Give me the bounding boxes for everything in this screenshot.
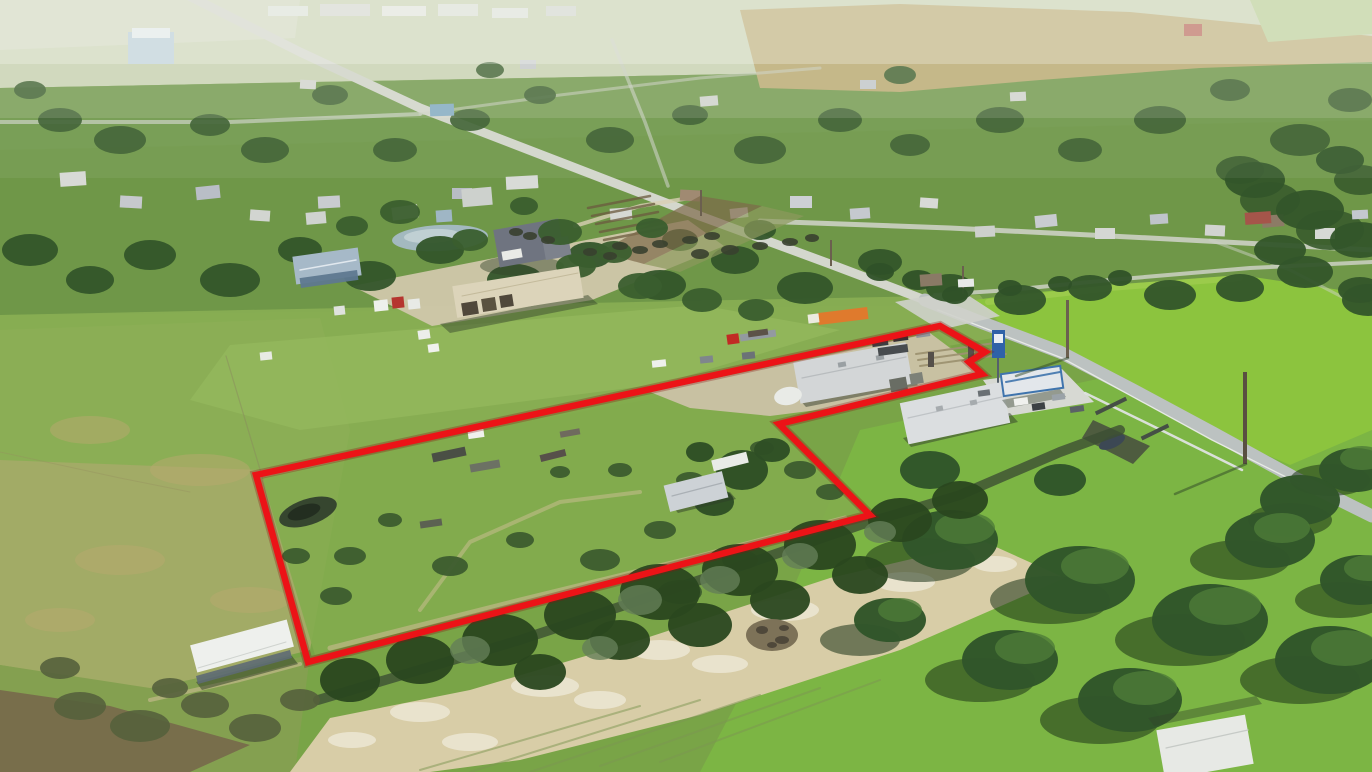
oak-highlight	[1113, 671, 1177, 705]
town-tree-front	[777, 272, 833, 304]
yard-shed	[909, 372, 924, 385]
town-house	[195, 185, 220, 200]
willow-canopy	[832, 556, 888, 594]
gas-sign-panel	[994, 334, 1003, 343]
utility-pole	[700, 190, 702, 216]
box-truck	[417, 329, 430, 340]
oak-highlight	[1061, 548, 1129, 584]
pasture-rough-patch	[50, 416, 130, 444]
parked-mower	[691, 249, 709, 259]
brush-pile-debris	[767, 642, 777, 648]
warehouse-a-bay	[481, 297, 497, 312]
aerial-property-photo	[0, 0, 1372, 772]
pipe-rack-support	[928, 352, 934, 367]
box-truck	[260, 351, 273, 360]
willow-highlight	[700, 566, 740, 594]
yard-vehicle	[700, 355, 714, 363]
corner-bush	[866, 263, 894, 281]
box-truck	[408, 298, 421, 309]
box-truck	[427, 343, 439, 352]
town-tree-front	[124, 240, 176, 270]
town-house	[1034, 214, 1057, 228]
scrub-bottomleft	[152, 678, 188, 698]
parcel-shrub	[378, 513, 402, 527]
town-house	[920, 197, 939, 208]
homestead-tree	[738, 299, 774, 321]
oak-highlight	[995, 632, 1055, 664]
town-house	[1150, 213, 1169, 224]
sand-patch	[692, 655, 748, 673]
oak-highlight	[1254, 513, 1310, 543]
town-tree-front	[1276, 190, 1344, 230]
parked-mower	[782, 238, 798, 246]
parcel-tree	[754, 438, 790, 462]
utility-pole	[830, 240, 832, 266]
outbuilding	[436, 209, 453, 222]
pasture-rough-patch	[75, 545, 165, 575]
parked-mower	[704, 232, 720, 240]
house-north-of-road	[920, 273, 943, 287]
brush-pile-debris	[775, 636, 789, 644]
homestead-tree	[380, 200, 420, 224]
homestead-tree	[510, 197, 538, 215]
willow-highlight	[618, 585, 662, 615]
parcel-shrub	[608, 463, 632, 477]
parked-mower	[721, 245, 739, 255]
town-house	[1205, 224, 1226, 236]
haze-mid	[0, 0, 1372, 118]
town-house	[250, 209, 271, 221]
willow-highlight	[450, 636, 490, 664]
parked-mower	[752, 242, 768, 250]
scrub-bottomleft	[280, 689, 320, 711]
parked-mower	[541, 236, 555, 244]
town-house	[1352, 210, 1368, 220]
outbuilding	[461, 187, 492, 208]
parked-mower	[682, 236, 698, 244]
scrub-bottomleft	[110, 710, 170, 742]
corner-bush	[1108, 270, 1132, 286]
scrub-bottomleft	[54, 692, 106, 720]
willow-canopy	[668, 603, 732, 647]
aerial-scene	[0, 0, 1372, 772]
town-house	[1245, 211, 1272, 225]
corner-bush	[1048, 276, 1072, 292]
scrub-bottomleft	[40, 657, 80, 679]
parked-mower	[509, 228, 523, 236]
town-house	[1095, 228, 1115, 239]
box-truck	[391, 296, 404, 308]
willow-highlight	[782, 543, 818, 569]
parked-mower	[603, 252, 617, 260]
yard-vehicle	[742, 351, 756, 359]
willow-canopy	[750, 580, 810, 620]
semi-cab	[807, 313, 819, 323]
parked-mower	[612, 242, 628, 250]
parked-mower	[523, 232, 537, 240]
parcel-shrub	[334, 547, 366, 565]
haze-near	[0, 118, 1372, 178]
parcel-shrub	[282, 548, 310, 564]
corner-bush	[942, 286, 968, 304]
town-tree-front	[2, 234, 58, 266]
parked-mower	[652, 240, 668, 248]
willow-canopy	[932, 481, 988, 519]
sand-patch	[574, 691, 626, 709]
town-house	[975, 225, 996, 237]
town-house	[318, 195, 341, 208]
parcel-shrub	[784, 461, 816, 479]
parcel-shrub	[580, 549, 620, 571]
homestead-tree	[682, 288, 722, 312]
parcel-shrub	[320, 587, 352, 605]
homestead-tree	[336, 216, 368, 236]
town-tree-front	[200, 263, 260, 297]
town-house	[790, 196, 812, 208]
willow-highlight	[864, 521, 896, 543]
town-house	[850, 207, 871, 219]
town-tree-front	[1068, 275, 1112, 301]
box-truck	[373, 299, 388, 311]
homestead-tree	[452, 229, 488, 251]
corner-bush	[998, 280, 1022, 296]
parcel-shrub	[550, 466, 570, 478]
warehouse-a-bay	[499, 294, 514, 308]
box-truck	[334, 305, 346, 315]
warehouse-a-bay	[461, 301, 479, 316]
town-tree-front	[1254, 235, 1306, 265]
oak-canopy	[1034, 464, 1086, 496]
scrub-bottomleft	[229, 714, 281, 742]
willow-canopy	[320, 658, 380, 702]
parked-mower	[632, 246, 648, 254]
utility-pole	[1243, 372, 1247, 464]
willow-highlight	[582, 636, 618, 660]
house-north-of-road	[958, 279, 974, 288]
homestead-tree	[618, 273, 662, 299]
outbuilding	[306, 211, 327, 225]
scrub-bottomleft	[181, 692, 229, 718]
homestead-tree	[636, 218, 668, 238]
willow-canopy	[514, 654, 566, 690]
town-tree-front	[1216, 274, 1264, 302]
parked-mower	[583, 248, 597, 256]
pasture-rough-patch	[210, 587, 290, 613]
parcel-tree	[686, 442, 714, 462]
parcel-shrub	[506, 532, 534, 548]
town-tree-front	[66, 266, 114, 294]
truck-cab-red	[726, 333, 739, 345]
oak-highlight	[878, 598, 922, 622]
town-house	[120, 195, 143, 208]
atmosphere	[0, 0, 1372, 178]
brush-pile-debris	[756, 626, 768, 634]
parked-mower	[805, 234, 819, 242]
pasture-rough-patch	[25, 608, 95, 632]
utility-pole	[1066, 300, 1069, 358]
pasture-rough-patch	[150, 454, 250, 486]
yard-vehicle	[652, 359, 667, 367]
oak-highlight	[1189, 587, 1261, 625]
parcel-shrub	[644, 521, 676, 539]
sand-patch	[390, 702, 450, 722]
sand-patch	[328, 732, 376, 748]
brush-pile-debris	[779, 625, 789, 631]
sand-patch	[442, 733, 498, 751]
town-tree-front	[1144, 280, 1196, 310]
parcel-shrub	[432, 556, 468, 576]
